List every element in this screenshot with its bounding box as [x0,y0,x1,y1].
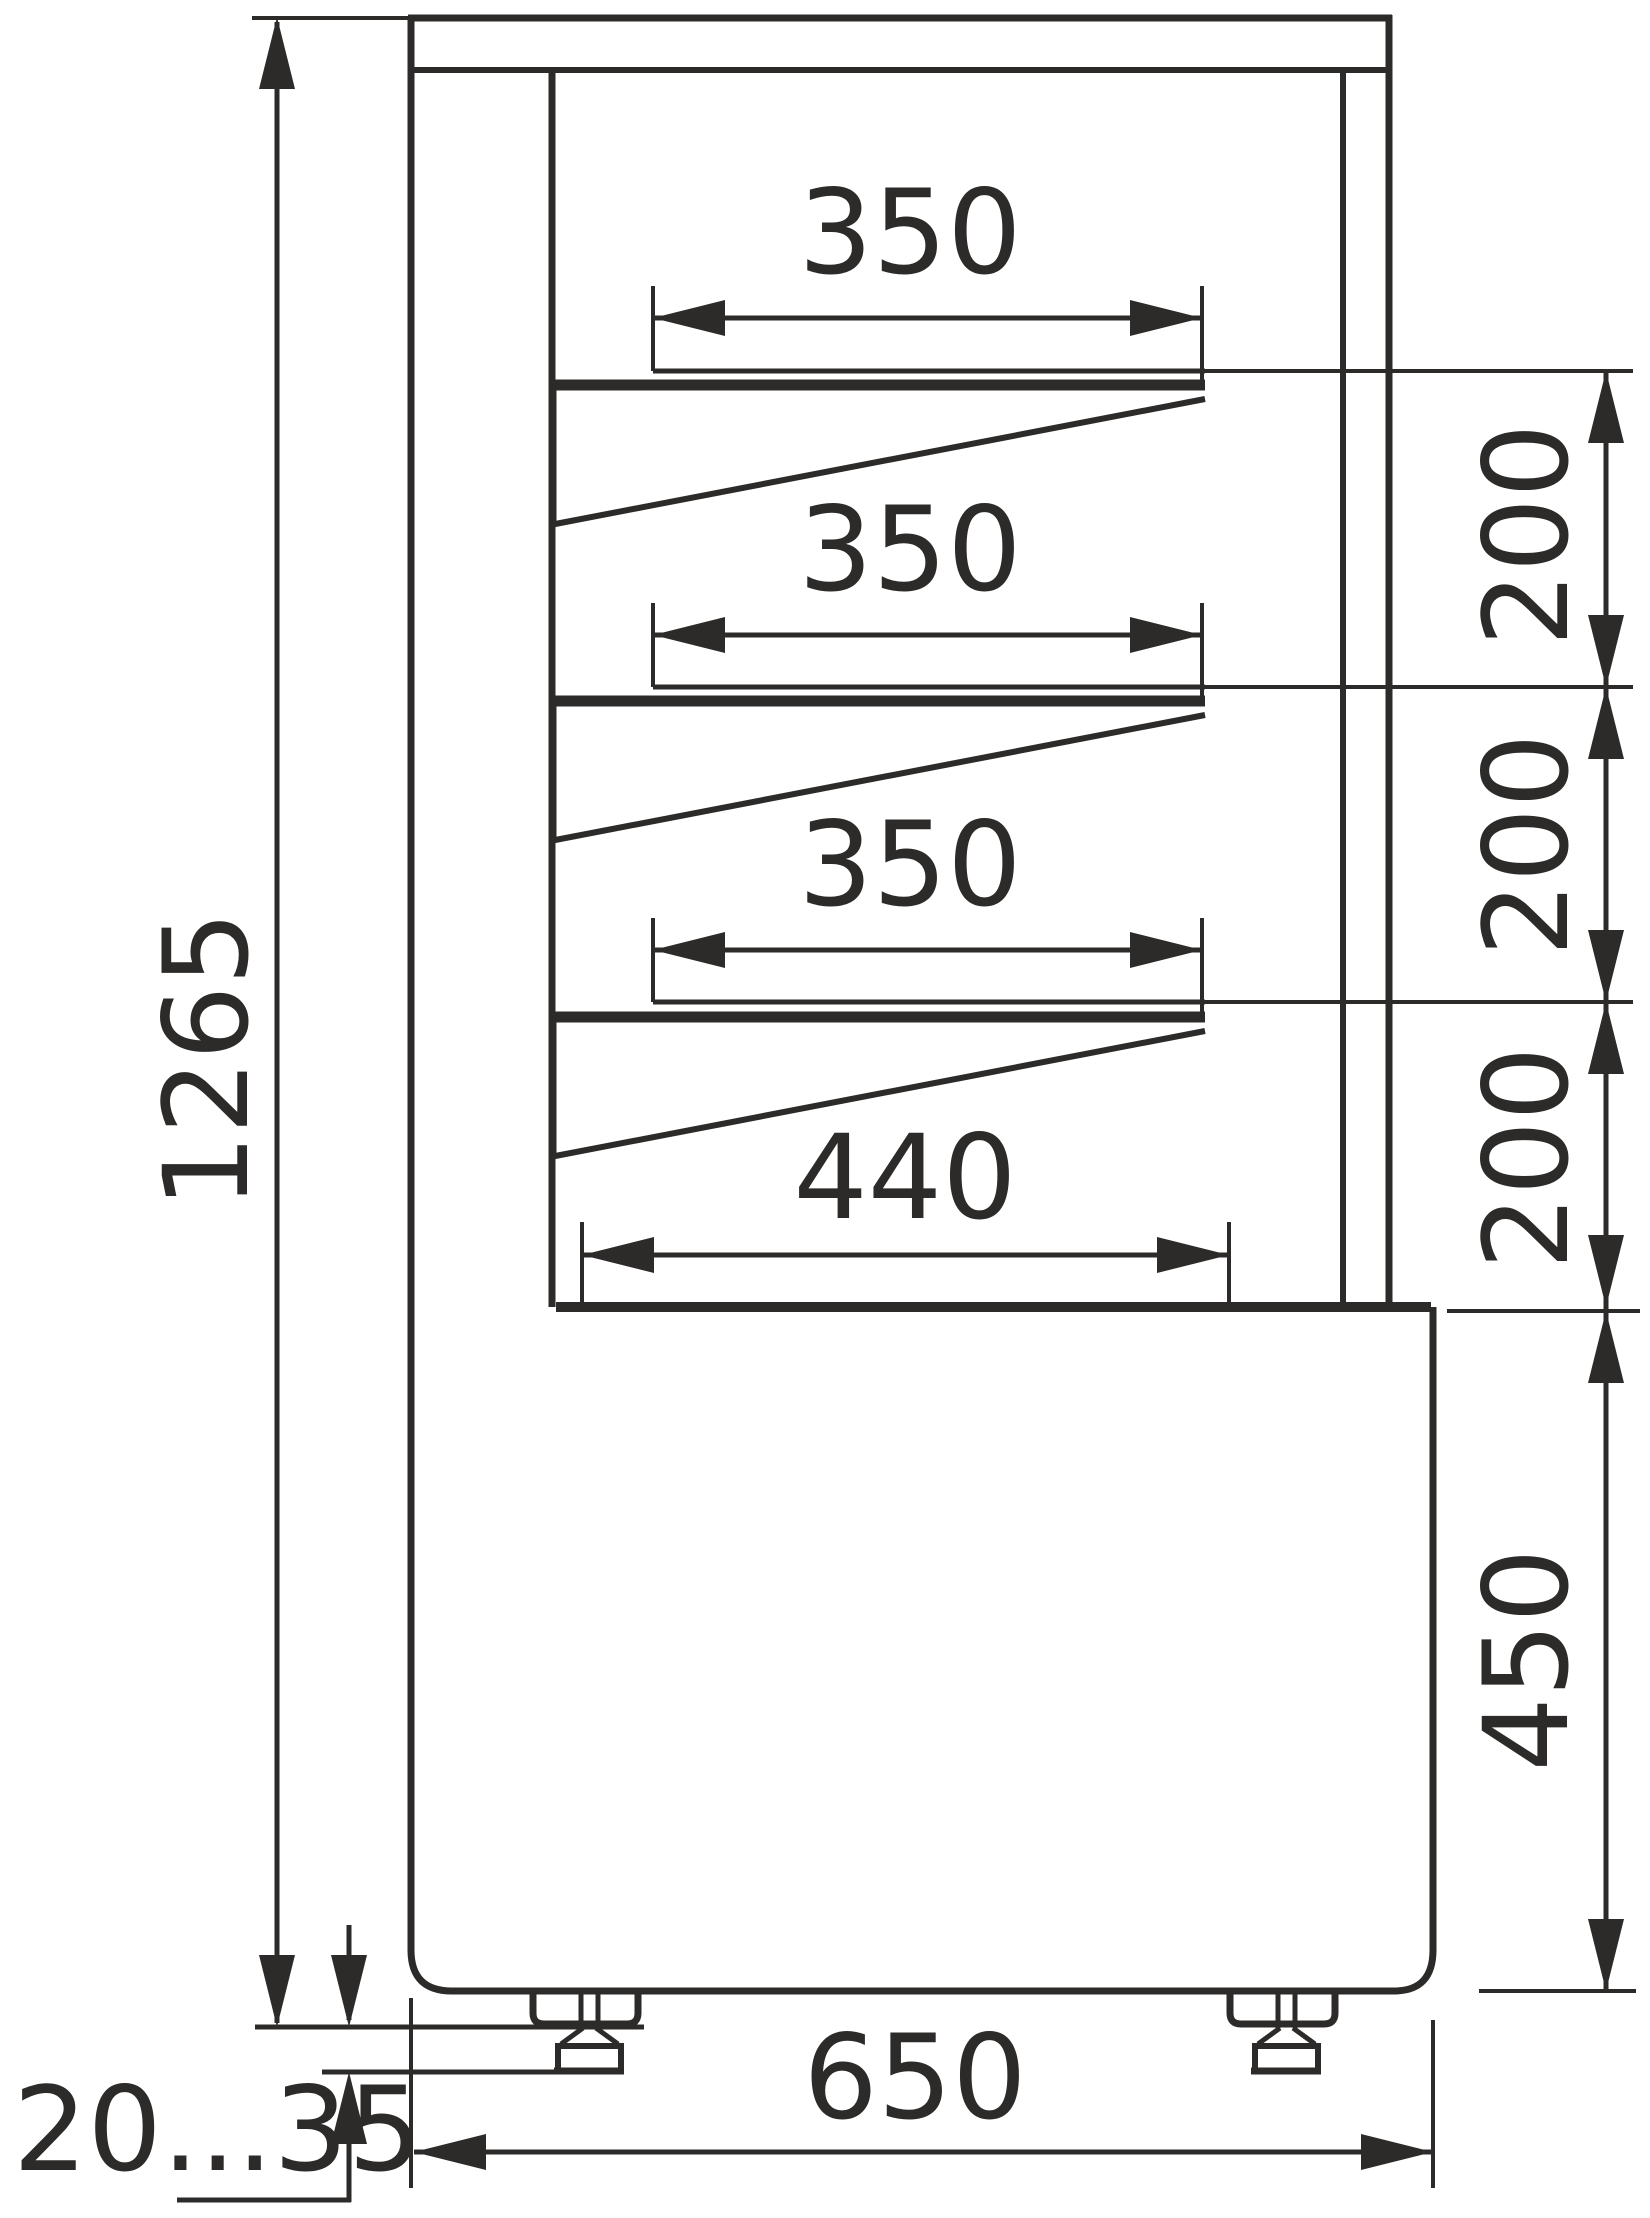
shelf-1-width-label: 350 [798,164,1021,301]
left-foot-bracket [533,1994,638,2024]
deck-arrow-left-icon [582,1237,654,1273]
chain-arrow-down-4-icon [1588,1919,1624,1991]
shelf-spacing-3-label: 200 [1458,1046,1595,1269]
right-foot-bracket [1230,1994,1335,2024]
left-foot-cone [561,2028,618,2044]
bottom-right-rounded-corner [1394,1950,1433,1991]
shelf-3-arrow-right-icon [1130,932,1202,968]
shelf-spacing-1-label: 200 [1458,423,1595,646]
cabinet-structure [408,15,1433,2071]
shelf-2-width-label: 350 [798,481,1021,618]
shelf-1-arrow-left-icon [653,300,725,336]
right-foot [1230,1994,1335,2071]
base-height-label: 450 [1458,1548,1595,1771]
overall-depth-label: 650 [803,2009,1026,2146]
shelf-2-arrow-right-icon [1130,617,1202,653]
right-foot-pad [1255,2046,1318,2071]
shelf-2-arrow-left-icon [653,617,725,653]
dimension-arrowheads [259,17,1624,2170]
height-arrow-down-icon [259,1955,295,2027]
display-case-side-view-drawing: 350 350 350 440 1265 200 200 200 450 650… [0,0,1650,2218]
dimension-labels: 350 350 350 440 1265 200 200 200 450 650… [13,164,1595,2198]
depth-arrow-left-icon [414,2134,486,2170]
chain-arrow-up-4-icon [1588,1311,1624,1383]
left-foot-pad [558,2046,621,2071]
overall-height-label: 1265 [138,911,275,1209]
deck-arrow-right-icon [1157,1237,1229,1273]
shelf-3-arrow-left-icon [653,932,725,968]
foot-adjust-arrow-down-icon [331,1955,367,2027]
right-foot-cone [1258,2028,1315,2044]
shelf-3-width-label: 350 [798,796,1021,933]
shelf-1-arrow-right-icon [1130,300,1202,336]
height-arrow-up-icon [259,17,295,89]
left-foot [533,1994,638,2071]
technical-drawing-page: 350 350 350 440 1265 200 200 200 450 650… [0,0,1650,2218]
deck-width-label: 440 [793,1109,1016,1246]
shelf-spacing-2-label: 200 [1458,733,1595,956]
bottom-left-rounded-corner [411,1950,452,1991]
depth-arrow-right-icon [1361,2134,1433,2170]
foot-adjust-range-label: 20...35 [13,2061,422,2198]
